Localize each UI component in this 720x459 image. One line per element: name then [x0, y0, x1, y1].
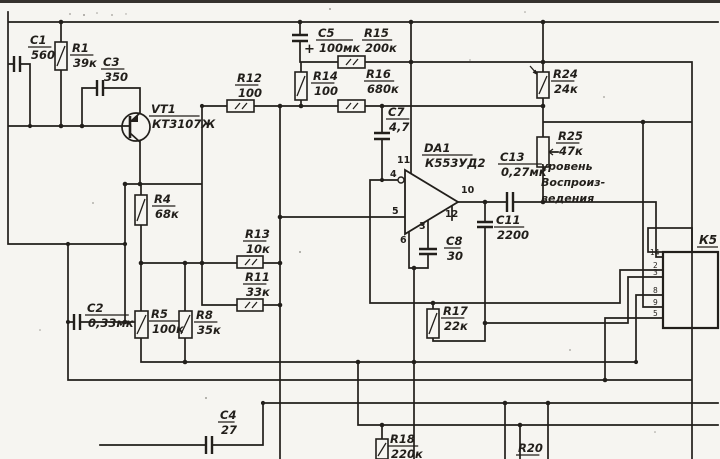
- annotation-line-1: Воспроиз-: [541, 176, 605, 189]
- inverting-input-circle: [398, 177, 404, 183]
- label-ref-R1: R1: [72, 41, 89, 55]
- annotation-line-0: уровень: [541, 160, 593, 173]
- capacitor-C11-symbol: [477, 222, 493, 227]
- connector-pin-labels-layer: К51423895: [650, 233, 718, 318]
- label-ref-R20: R20: [518, 441, 543, 455]
- capacitor-C13-symbol: [507, 192, 513, 212]
- label-val-C5: 100мк: [319, 41, 361, 55]
- label-ref-R5: R5: [151, 307, 168, 321]
- connector-pin-14: 14: [650, 248, 660, 257]
- capacitor-C3-symbol: [97, 80, 103, 96]
- capacitor-C8-symbol: [419, 249, 437, 254]
- label-val-C3: 350: [104, 70, 128, 84]
- label-ref-R25: R25: [558, 129, 583, 143]
- opamp-pin-10: 10: [461, 185, 475, 196]
- capacitor-C7-symbol: [374, 133, 390, 139]
- label-ref-C4: C4: [220, 408, 236, 422]
- label-val-R14: 100: [314, 84, 338, 98]
- label-ref-R17: R17: [443, 304, 468, 318]
- connector-pin-9: 9: [653, 298, 658, 307]
- resistor-R16-symbol: [338, 100, 365, 112]
- capacitor-C5-symbol: [292, 35, 308, 41]
- label-val-C11: 2200: [497, 228, 529, 242]
- label-ref-R24: R24: [553, 67, 578, 81]
- transistor-VT1-symbol: [122, 113, 150, 142]
- label-val-C4: 27: [221, 423, 237, 437]
- label-ref-C7: C7: [388, 105, 404, 119]
- connector-pin-8: 8: [653, 286, 658, 295]
- schematic-canvas: C1560R139кC3350VT1КТ3107ЖR12100C5100мкR1…: [0, 0, 720, 459]
- annotation-layer: уровеньВоспроиз-ведения: [541, 160, 605, 205]
- label-val-R13: 10к: [246, 242, 271, 256]
- label-val-R12: 100: [238, 86, 262, 100]
- label-val-R18: 220к: [391, 447, 424, 459]
- resistor-R11-symbol: [237, 299, 263, 311]
- connector-pin-3: 3: [653, 268, 658, 277]
- connector-K5-box: [663, 252, 718, 328]
- opamp-pin-12: 12: [445, 209, 458, 220]
- label-val-C7: 4,7: [388, 120, 409, 134]
- label-ref-C3: C3: [103, 55, 119, 69]
- label-ref-C5: C5: [318, 26, 334, 40]
- opamp-pin-6: 6: [400, 235, 407, 246]
- label-ref-R16: R16: [366, 67, 391, 81]
- capacitor-C2-symbol: [74, 314, 80, 330]
- label-ref-R4: R4: [154, 192, 171, 206]
- label-ref-C1: C1: [30, 33, 46, 47]
- polarity-plus-sign-C5: +: [304, 42, 315, 57]
- label-ref-R11: R11: [245, 270, 270, 284]
- label-ref-R8: R8: [196, 308, 213, 322]
- label-ref-C2: C2: [87, 301, 103, 315]
- label-ref-R15: R15: [364, 26, 389, 40]
- connector-K5-label: К5: [699, 233, 717, 247]
- opamp-pin-3: 3: [419, 221, 426, 232]
- label-val-R15: 200к: [365, 41, 398, 55]
- label-val-R24: 24к: [554, 82, 579, 96]
- capacitor-C1-symbol: [14, 56, 20, 72]
- resistor-R12-symbol: [227, 100, 254, 112]
- label-val-R17: 22к: [444, 319, 469, 333]
- opamp-pin-4: 4: [390, 169, 397, 180]
- label-ref-C13: C13: [500, 150, 524, 164]
- label-val-VT1: КТ3107Ж: [152, 117, 216, 131]
- annotation-line-2: ведения: [541, 192, 594, 205]
- scan-edge-strip: [0, 0, 720, 3]
- label-ref-C11: C11: [496, 213, 520, 227]
- label-ref-C8: C8: [446, 234, 462, 248]
- label-val-R8: 35к: [197, 323, 222, 337]
- opamp-pin-5: 5: [392, 206, 399, 217]
- schematic-scan: C1560R139кC3350VT1КТ3107ЖR12100C5100мкR1…: [0, 0, 720, 459]
- label-val-R1: 39к: [73, 56, 98, 70]
- resistor-R13-symbol: [237, 256, 263, 268]
- label-val-C1: 560: [31, 48, 55, 62]
- resistor-marks: [57, 46, 553, 456]
- pnp-arrow-icon: [131, 115, 138, 122]
- label-val-R25: 47к: [558, 144, 584, 158]
- label-val-R16: 680к: [367, 82, 400, 96]
- label-val-R5: 100к: [152, 322, 185, 336]
- label-ref-R18: R18: [390, 432, 415, 446]
- label-val-DA1: К553УД2: [425, 156, 486, 170]
- label-val-C2: 0,33мк: [88, 316, 135, 330]
- connector-pin-5: 5: [653, 309, 658, 318]
- label-ref-DA1: DA1: [424, 141, 450, 155]
- label-ref-R14: R14: [313, 69, 338, 83]
- resistor-R15-symbol: [338, 56, 365, 68]
- capacitor-C4-symbol: [206, 436, 212, 454]
- label-ref-VT1: VT1: [151, 102, 176, 116]
- label-ref-R13: R13: [245, 227, 270, 241]
- label-val-R11: 33к: [246, 285, 271, 299]
- label-val-C8: 30: [447, 249, 463, 263]
- opamp-pin-11: 11: [397, 155, 410, 166]
- label-ref-R12: R12: [237, 71, 262, 85]
- label-val-R4: 68к: [155, 207, 180, 221]
